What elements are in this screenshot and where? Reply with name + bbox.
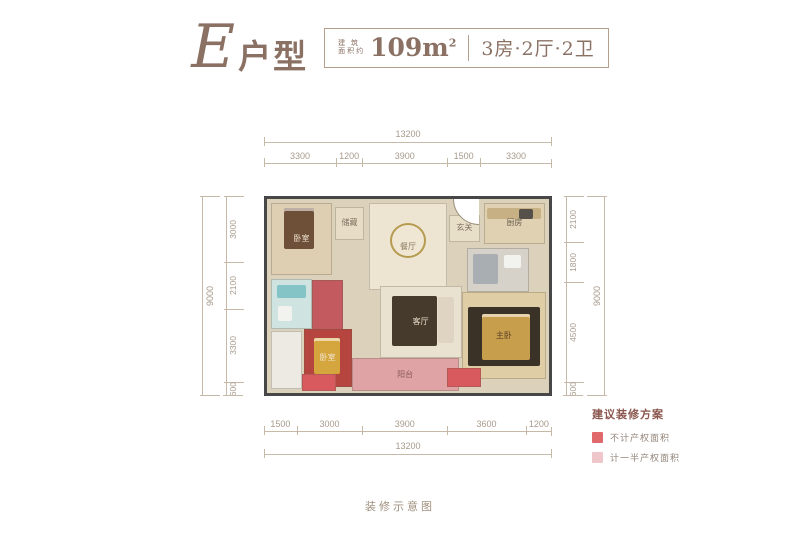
dimension-total-label: 13200 xyxy=(264,128,552,140)
dimension-value: 1200 xyxy=(526,418,552,432)
room-label: 主卧 xyxy=(496,332,512,340)
dim-left-segments: 300021003300600 xyxy=(226,196,240,396)
built-area-prefix-bottom: 面积约 xyxy=(338,48,365,56)
dim-top-segments: 33001200390015003300 xyxy=(264,150,552,164)
room-master-bedroom: 主卧 xyxy=(462,292,547,379)
dimension-total-label: 9000 xyxy=(592,286,602,306)
dimension-value: 3000 xyxy=(226,196,240,262)
fixture-shape xyxy=(278,306,291,321)
dimension-value: 4500 xyxy=(566,282,580,382)
legend-label: 计一半产权面积 xyxy=(610,451,680,464)
dimension-label: 3300 xyxy=(506,152,526,161)
room-label: 储藏 xyxy=(341,219,357,227)
dim-bottom-total: 13200 xyxy=(264,440,552,455)
room-label: 厨房 xyxy=(506,219,522,227)
legend-label: 不计产权面积 xyxy=(610,431,670,444)
dimension-label: 600 xyxy=(229,382,238,396)
room-storage: 储藏 xyxy=(335,207,365,240)
dimension-label: 2100 xyxy=(229,276,238,295)
unit-type-title: E 户型 xyxy=(191,22,308,73)
dimension-value: 3000 xyxy=(297,418,362,432)
dimension-label: 3900 xyxy=(395,152,415,161)
room-kitchen: 厨房 xyxy=(484,203,545,244)
built-area-group: 建 筑 面积约 109m2 xyxy=(338,35,456,60)
dimension-value: 3900 xyxy=(362,150,447,164)
plan-caption: 装修示意图 xyxy=(0,498,800,514)
unit-type-word: 户型 xyxy=(238,40,308,73)
no-property-area-swatch xyxy=(592,432,603,443)
dimension-label: 600 xyxy=(569,382,578,396)
fixture-shape xyxy=(473,254,498,284)
dimension-value: 600 xyxy=(226,382,240,396)
dimension-value: 3900 xyxy=(362,418,447,432)
dimension-label: 2100 xyxy=(569,210,578,229)
legend-item: 不计产权面积 xyxy=(592,431,680,444)
room-bathroom-2 xyxy=(467,248,529,293)
dimension-value: 600 xyxy=(566,382,580,396)
unit-type-letter: E xyxy=(191,22,235,73)
dimension-total-label: 9000 xyxy=(205,286,215,306)
dimension-value: 1200 xyxy=(336,150,362,164)
room-label: 餐厅 xyxy=(400,243,416,251)
room-living: 客厅 xyxy=(380,286,462,358)
fixture-shape xyxy=(519,209,533,219)
dim-bottom-segments: 15003000390036001200 xyxy=(264,418,552,432)
built-area-prefix-top: 建 筑 xyxy=(338,40,365,48)
dimension-value: 1500 xyxy=(264,418,297,432)
dimension-value: 3600 xyxy=(447,418,526,432)
legend-item: 计一半产权面积 xyxy=(592,451,680,464)
built-area-prefix: 建 筑 面积约 xyxy=(338,40,365,56)
dimension-label: 1200 xyxy=(529,420,549,429)
dim-right-segments: 210018004500600 xyxy=(566,196,580,396)
floor-plan: 卧室储藏餐厅玄关厨房客厅主卧卧室阳台 xyxy=(264,196,552,396)
room-label: 玄关 xyxy=(456,224,472,232)
room-platform xyxy=(271,331,302,389)
room-bedroom-2: 卧室 xyxy=(271,203,332,275)
area-superscript: 2 xyxy=(449,37,457,50)
dimension-label: 1500 xyxy=(454,152,474,161)
vertical-divider xyxy=(468,35,469,61)
dim-left-total: 9000 xyxy=(202,196,217,396)
dimension-label: 3600 xyxy=(477,420,497,429)
dimension-label: 1800 xyxy=(569,253,578,272)
dimension-value: 1500 xyxy=(447,150,480,164)
dimension-value: 3300 xyxy=(480,150,552,164)
unit-info-box: 建 筑 面积约 109m2 3房·2厅·2卫 xyxy=(324,28,609,68)
room-ac-right xyxy=(447,368,481,387)
dimension-label: 3000 xyxy=(319,420,339,429)
dimension-label: 3300 xyxy=(290,152,310,161)
dim-top-total: 13200 xyxy=(264,128,552,143)
room-label: 阳台 xyxy=(397,371,413,379)
room-label: 卧室 xyxy=(294,235,310,243)
room-bathroom-1 xyxy=(271,279,312,329)
dimension-value: 3300 xyxy=(264,150,336,164)
room-ac-left xyxy=(302,374,336,391)
fixture-shape xyxy=(504,255,521,268)
room-label: 客厅 xyxy=(413,318,429,326)
built-area-value: 109m2 xyxy=(370,35,456,60)
dimension-label: 1500 xyxy=(270,420,290,429)
dimension-label: 1200 xyxy=(339,152,359,161)
legend-title: 建议装修方案 xyxy=(592,406,680,422)
dimension-value: 2100 xyxy=(226,262,240,308)
dimension-value: 1800 xyxy=(566,242,580,282)
dimension-label: 3900 xyxy=(395,420,415,429)
dimension-total-label: 13200 xyxy=(264,440,552,452)
dimension-value: 3300 xyxy=(226,309,240,382)
area-number: 109m xyxy=(370,33,449,62)
sofa-shape xyxy=(438,297,454,343)
fixture-shape xyxy=(277,285,306,298)
half-property-area-swatch xyxy=(592,452,603,463)
room-label: 卧室 xyxy=(320,354,336,362)
dimension-label: 3300 xyxy=(229,336,238,355)
dimension-label: 4500 xyxy=(569,323,578,342)
room-foyer: 玄关 xyxy=(449,215,480,242)
dimension-label: 3000 xyxy=(229,220,238,239)
room-spec: 3房·2厅·2卫 xyxy=(481,34,594,61)
floorplan-page: E 户型 建 筑 面积约 109m2 3房·2厅·2卫 13200 330012… xyxy=(0,0,800,534)
room-shower xyxy=(312,280,343,330)
dimension-value: 2100 xyxy=(566,196,580,242)
legend: 建议装修方案 不计产权面积 计一半产权面积 xyxy=(592,406,680,464)
room-dining: 餐厅 xyxy=(369,203,448,290)
header: E 户型 建 筑 面积约 109m2 3房·2厅·2卫 xyxy=(0,22,800,73)
dim-right-total: 9000 xyxy=(590,196,605,396)
room-balcony: 阳台 xyxy=(352,358,459,391)
